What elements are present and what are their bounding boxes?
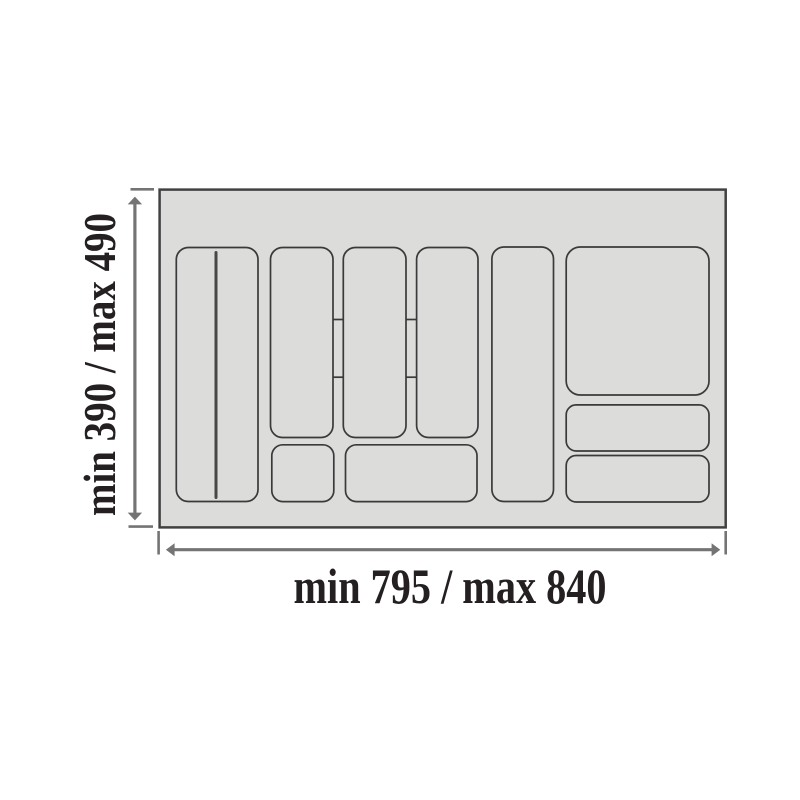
svg-text:min 795 / max 840: min 795 / max 840: [294, 558, 607, 614]
svg-text:min 390 / max 490: min 390 / max 490: [74, 213, 125, 516]
